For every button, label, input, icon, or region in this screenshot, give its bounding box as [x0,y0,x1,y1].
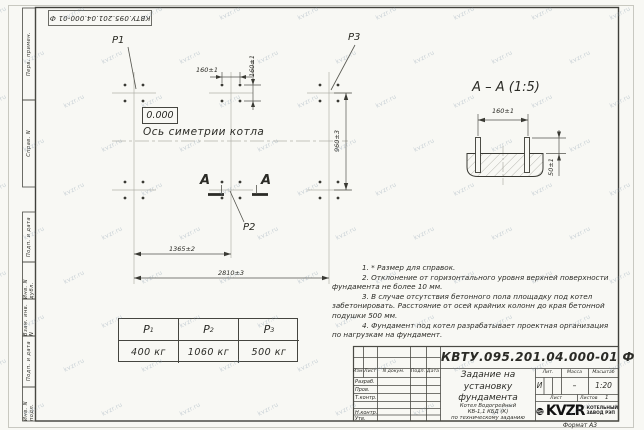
mass-header: Масса [561,370,588,375]
margin-label-perv-primen: Перв. примен. [22,8,35,100]
margin-label-inv-dubl: Инв. N дубл. [22,262,35,299]
section-letter-left: А [200,173,210,188]
note-line: подушки 500 мм. [332,311,628,321]
notes-block: 1. * Размер для справок. 2. Отклонение о… [332,263,628,340]
section-letter-right: А [261,173,271,188]
margin-label-vzam-inv: Взам. инв. N [22,299,35,336]
load-table: P1 P2 P3 400 кг 1060 кг 500 кг [118,318,298,362]
row-label-prov: Пров. [355,387,370,393]
company-name-line: ЗАВОД РЭП [586,411,618,416]
doc-title-line: Задание на [441,370,535,382]
company-name: КОТЕЛЬНЫЙ ЗАВОД РЭП [586,406,618,416]
load-table-value-p3: 500 кг [239,341,299,363]
product-name: Котел Водогрейный КВ-1,1 КБД (К) по техн… [441,404,535,422]
col-header-data: Дата [426,369,440,374]
top-stamp-number: КВТУ.095.201.04.000-01 Ф [48,10,152,26]
note-line: 3. В случае отсутствия бетонного пола пл… [332,292,628,302]
scale-header: Масштаб [588,370,619,375]
dim-1365: 1365±2 [157,245,207,253]
dim-160-horizontal: 160±1 [192,66,218,74]
scale-value: 1:20 [588,378,619,394]
lit-value: И [535,378,544,394]
margin-label-podp-data-2: Подп. и дата [22,336,35,387]
note-line: 4. Фундамент под котел разрабатывает про… [332,321,628,331]
load-table-header-p3: P3 [239,319,299,341]
load-point-p3-label: P3 [348,32,360,43]
plan-anchor-bolts [124,84,340,200]
load-table-value-p2: 1060 кг [179,341,239,363]
note-line: фундамента не более 10 мм. [332,282,628,292]
elevation-mark: 0.000 [142,107,178,124]
row-label-utv: Утв. [355,416,366,422]
kvzr-logo-text: KVZR [546,403,585,419]
note-line: 2. Отклонение от горизонтального уровня … [332,273,628,283]
mass-value: – [561,378,588,394]
doc-title-line: установку [441,382,535,394]
margin-label-podp-data-1: Подп. и дата [22,212,35,262]
boiler-axis-label: Ось симетрии котла [143,126,264,138]
section-view-title: А – А (1:5) [452,80,560,95]
section-dim-50: 50±1 [547,153,555,181]
dim-160-vertical: 160±1 [248,52,256,80]
format-label: Формат А3 [540,422,620,429]
row-label-tkontr: Т.контр. [355,395,377,401]
load-point-p1-label: P1 [112,35,124,46]
plan-centerlines [112,72,351,284]
title-block-doc-number: КВТУ.095.201.04.000-01 Ф [441,346,618,368]
sheets-label: Листов [580,396,598,401]
sheet-label: Лист [535,396,577,401]
lit-header: Лит. [535,370,561,375]
drawing-sheet: Перв. примен. Справ. N Подп. и дата Инв.… [0,0,644,430]
product-name-line: по техническому заданию [441,416,535,422]
col-header-ndokum: N докум. [377,369,410,374]
note-line: по нагрузкам на фундамент. [332,330,628,340]
dim-2810: 2810±3 [206,269,256,277]
load-table-header-p2: P2 [179,319,239,341]
kvzr-logo-icon [536,405,544,418]
col-header-list: Лист [363,369,377,374]
note-line: 1. * Размер для справок. [332,263,628,273]
section-dim-160: 160±1 [478,107,528,115]
col-header-izm: Изм. [353,369,363,374]
margin-label-inv-podl: Инв. N подл. [22,387,35,421]
note-line: забетонировать. Расстояние от осей крайн… [332,301,628,311]
dim-960: 960±3 [333,127,341,155]
company-logo-block: KVZR КОТЕЛЬНЫЙ ЗАВОД РЭП [536,402,618,421]
load-table-value-p1: 400 кг [119,341,179,363]
row-label-razrab: Разраб. [355,379,375,385]
sheets-value: 1 [605,395,609,401]
doc-title: Задание на установку фундамента [441,370,535,405]
load-point-p2-label: P2 [243,222,255,233]
col-header-podp: Подп. [410,369,426,374]
margin-label-sprav-n: Справ. N [22,100,35,187]
load-table-header-p1: P1 [119,319,179,341]
